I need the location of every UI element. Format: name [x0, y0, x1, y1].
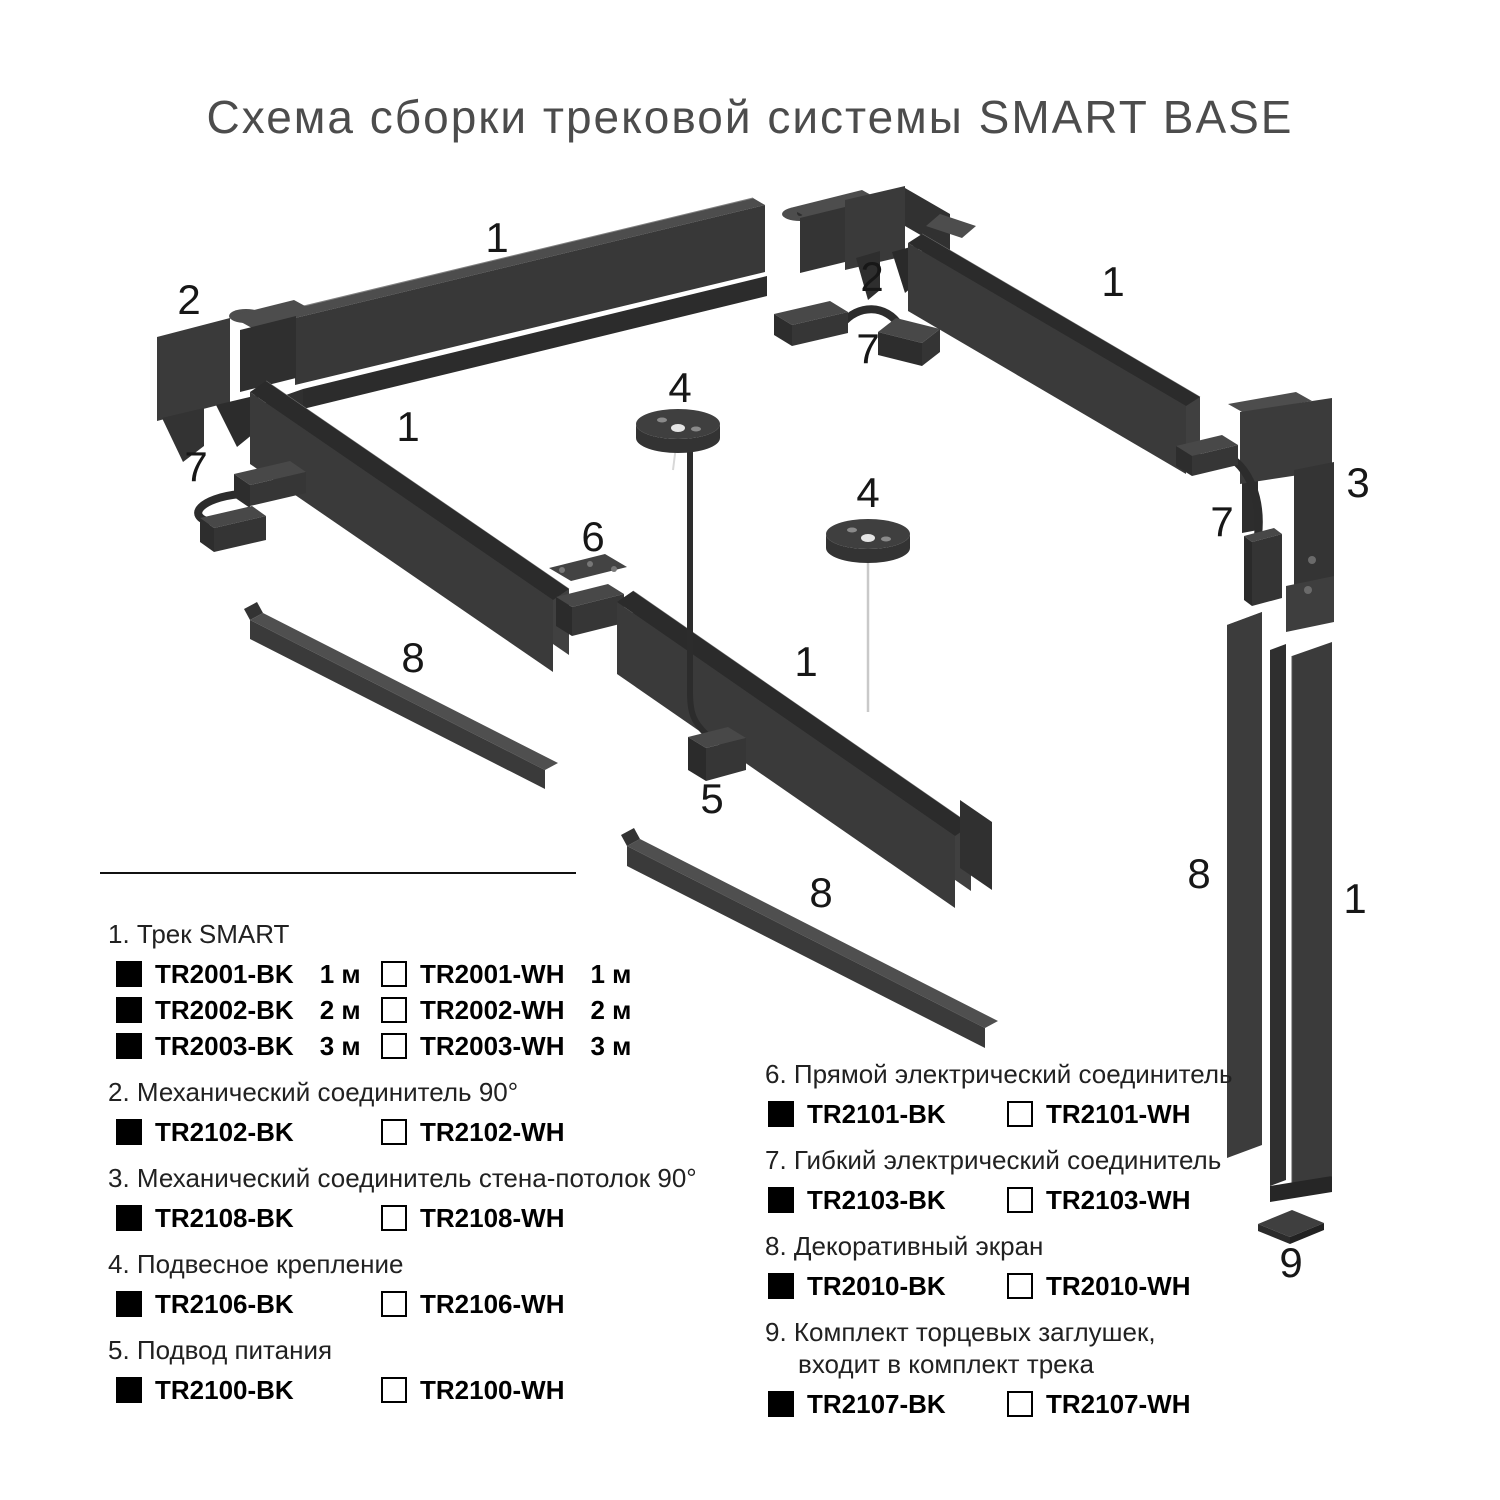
- legend-item-title: 2. Механический соединитель 90°: [108, 1076, 728, 1108]
- part-label-1: 1: [485, 214, 508, 261]
- sku-code: TR2106-WH: [420, 1289, 564, 1320]
- legend-item-title: 7. Гибкий электрический соединитель: [765, 1144, 1245, 1176]
- sku-code: TR2103-WH: [1046, 1185, 1190, 1216]
- pendant-mount-4-right: [826, 519, 910, 712]
- legend-item-title: 8. Декоративный экран: [765, 1230, 1245, 1262]
- black-swatch: [768, 1391, 794, 1417]
- part-label-1e: 1: [1343, 875, 1366, 922]
- black-swatch: [768, 1101, 794, 1127]
- sku-white: TR2108-WH: [381, 1203, 564, 1234]
- sku-black: TR2002-BK 2 м: [116, 995, 381, 1026]
- power-feed-5: [688, 727, 746, 781]
- part-label-2b: 2: [860, 253, 883, 300]
- sku-black: TR2108-BK: [116, 1203, 381, 1234]
- white-swatch: [381, 961, 407, 987]
- white-swatch: [1007, 1273, 1033, 1299]
- sku-code: TR2101-BK: [807, 1099, 946, 1130]
- part-label-5: 5: [700, 775, 723, 822]
- sku-code: TR2108-WH: [420, 1203, 564, 1234]
- sku-white: TR2010-WH: [1007, 1271, 1190, 1302]
- sku-row: TR2101-BK TR2101-WH: [765, 1096, 1245, 1132]
- assembly-scheme-page: Схема сборки трековой системы SMART BASE: [0, 0, 1500, 1500]
- sku-row: TR2100-BK TR2100-WH: [108, 1372, 728, 1408]
- sku-row: TR2106-BK TR2106-WH: [108, 1286, 728, 1322]
- legend-item-title: 5. Подвод питания: [108, 1334, 728, 1366]
- sku-code: TR2001-WH: [420, 959, 564, 990]
- sku-row: TR2002-BK 2 м TR2002-WH 2 м: [108, 992, 728, 1028]
- part-label-1c: 1: [1101, 258, 1124, 305]
- sku-row: TR2102-BK TR2102-WH: [108, 1114, 728, 1150]
- sku-code: TR2106-BK: [155, 1289, 294, 1320]
- sku-code: TR2010-BK: [807, 1271, 946, 1302]
- white-swatch: [381, 1205, 407, 1231]
- sku-white: TR2102-WH: [381, 1117, 564, 1148]
- sku-length: 3 м: [320, 1031, 361, 1062]
- part-label-3: 3: [1346, 459, 1369, 506]
- black-swatch: [116, 1291, 142, 1317]
- sku-code: TR2002-WH: [420, 995, 564, 1026]
- sku-black: TR2102-BK: [116, 1117, 381, 1148]
- legend-right-column: 6. Прямой электрический соединитель TR21…: [765, 1058, 1245, 1434]
- sku-code: TR2107-BK: [807, 1389, 946, 1420]
- white-swatch: [1007, 1391, 1033, 1417]
- sku-black: TR2101-BK: [768, 1099, 1007, 1130]
- legend-item-title: 3. Механический соединитель стена-потоло…: [108, 1162, 728, 1194]
- sku-white: TR2001-WH 1 м: [381, 959, 631, 990]
- part-label-1b: 1: [396, 403, 419, 450]
- legend-item-title-line2: входит в комплект трека: [765, 1348, 1245, 1380]
- white-swatch: [381, 1119, 407, 1145]
- sku-black: TR2100-BK: [116, 1375, 381, 1406]
- sku-length: 2 м: [320, 995, 361, 1026]
- sku-black: TR2003-BK 3 м: [116, 1031, 381, 1062]
- sku-white: TR2101-WH: [1007, 1099, 1190, 1130]
- sku-code: TR2102-BK: [155, 1117, 294, 1148]
- legend-item-title: 4. Подвесное крепление: [108, 1248, 728, 1280]
- white-swatch: [381, 1377, 407, 1403]
- legend-item-straight-connector: 6. Прямой электрический соединитель TR21…: [765, 1058, 1245, 1132]
- legend-item-flex-connector: 7. Гибкий электрический соединитель TR21…: [765, 1144, 1245, 1218]
- white-swatch: [1007, 1101, 1033, 1127]
- black-swatch: [768, 1187, 794, 1213]
- screw-hole: [1304, 586, 1312, 594]
- sku-black: TR2010-BK: [768, 1271, 1007, 1302]
- part-label-9: 9: [1279, 1239, 1302, 1286]
- legend-left-column: 1. Трек SMART TR2001-BK 1 м TR2001-WH 1 …: [108, 918, 728, 1420]
- sku-code: TR2003-BK: [155, 1031, 294, 1062]
- part-label-8c: 8: [1187, 850, 1210, 897]
- screw-hole: [1308, 556, 1316, 564]
- sku-code: TR2010-WH: [1046, 1271, 1190, 1302]
- track-1-right: [908, 234, 1200, 474]
- part-label-2: 2: [177, 276, 200, 323]
- sku-black: TR2107-BK: [768, 1389, 1007, 1420]
- sku-code: TR2003-WH: [420, 1031, 564, 1062]
- sku-row: TR2108-BK TR2108-WH: [108, 1200, 728, 1236]
- sku-white: TR2106-WH: [381, 1289, 564, 1320]
- legend-item-power-feed: 5. Подвод питания TR2100-BK TR2100-WH: [108, 1334, 728, 1408]
- black-swatch: [116, 997, 142, 1023]
- sku-code: TR2107-WH: [1046, 1389, 1190, 1420]
- sku-row: TR2010-BK TR2010-WH: [765, 1268, 1245, 1304]
- sku-row: TR2103-BK TR2103-WH: [765, 1182, 1245, 1218]
- sku-code: TR2108-BK: [155, 1203, 294, 1234]
- sku-row: TR2001-BK 1 м TR2001-WH 1 м: [108, 956, 728, 992]
- black-swatch: [116, 1377, 142, 1403]
- part-label-4b: 4: [856, 469, 879, 516]
- sku-white: TR2100-WH: [381, 1375, 564, 1406]
- white-swatch: [381, 1291, 407, 1317]
- legend-item-title: 9. Комплект торцевых заглушек,: [765, 1316, 1245, 1348]
- black-swatch: [768, 1273, 794, 1299]
- sku-white: TR2103-WH: [1007, 1185, 1190, 1216]
- part-label-4a: 4: [668, 364, 691, 411]
- legend-item-title: 1. Трек SMART: [108, 918, 728, 950]
- sku-row: TR2003-BK 3 м TR2003-WH 3 м: [108, 1028, 728, 1064]
- legend-item-corner-connector: 2. Механический соединитель 90° TR2102-B…: [108, 1076, 728, 1150]
- sku-white: TR2003-WH 3 м: [381, 1031, 631, 1062]
- part-label-7b: 7: [856, 325, 879, 372]
- legend-item-pendant-mount: 4. Подвесное крепление TR2106-BK TR2106-…: [108, 1248, 728, 1322]
- legend-item-track: 1. Трек SMART TR2001-BK 1 м TR2001-WH 1 …: [108, 918, 728, 1064]
- track-1-vertical: [1270, 642, 1332, 1202]
- white-swatch: [381, 997, 407, 1023]
- sku-code: TR2103-BK: [807, 1185, 946, 1216]
- legend-item-title: 6. Прямой электрический соединитель: [765, 1058, 1245, 1090]
- sku-code: TR2002-BK: [155, 995, 294, 1026]
- sku-length: 1 м: [590, 959, 631, 990]
- part-label-7a: 7: [184, 443, 207, 490]
- black-swatch: [116, 1119, 142, 1145]
- white-swatch: [381, 1033, 407, 1059]
- sku-black: TR2001-BK 1 м: [116, 959, 381, 990]
- flex-connector-7-left: [198, 461, 306, 552]
- sku-code: TR2102-WH: [420, 1117, 564, 1148]
- sku-black: TR2103-BK: [768, 1185, 1007, 1216]
- sku-code: TR2100-WH: [420, 1375, 564, 1406]
- part-label-8a: 8: [401, 634, 424, 681]
- white-swatch: [1007, 1187, 1033, 1213]
- black-swatch: [116, 1033, 142, 1059]
- part-label-6: 6: [581, 513, 604, 560]
- part-label-1d: 1: [794, 638, 817, 685]
- sku-length: 1 м: [320, 959, 361, 990]
- part-label-8b: 8: [809, 869, 832, 916]
- sku-length: 3 м: [590, 1031, 631, 1062]
- sku-code: TR2101-WH: [1046, 1099, 1190, 1130]
- track-1-top-left: [283, 198, 767, 414]
- legend-item-end-caps: 9. Комплект торцевых заглушек, входит в …: [765, 1316, 1245, 1422]
- sku-black: TR2106-BK: [116, 1289, 381, 1320]
- part-label-7c: 7: [1210, 498, 1233, 545]
- sku-code: TR2100-BK: [155, 1375, 294, 1406]
- black-swatch: [116, 1205, 142, 1231]
- sku-code: TR2001-BK: [155, 959, 294, 990]
- legend-separator-line: [100, 872, 576, 874]
- sku-white: TR2107-WH: [1007, 1389, 1190, 1420]
- sku-white: TR2002-WH 2 м: [381, 995, 631, 1026]
- sku-length: 2 м: [590, 995, 631, 1026]
- legend-item-screen: 8. Декоративный экран TR2010-BK TR2010-W…: [765, 1230, 1245, 1304]
- black-swatch: [116, 961, 142, 987]
- sku-row: TR2107-BK TR2107-WH: [765, 1386, 1245, 1422]
- legend-item-wall-ceiling-connector: 3. Механический соединитель стена-потоло…: [108, 1162, 728, 1236]
